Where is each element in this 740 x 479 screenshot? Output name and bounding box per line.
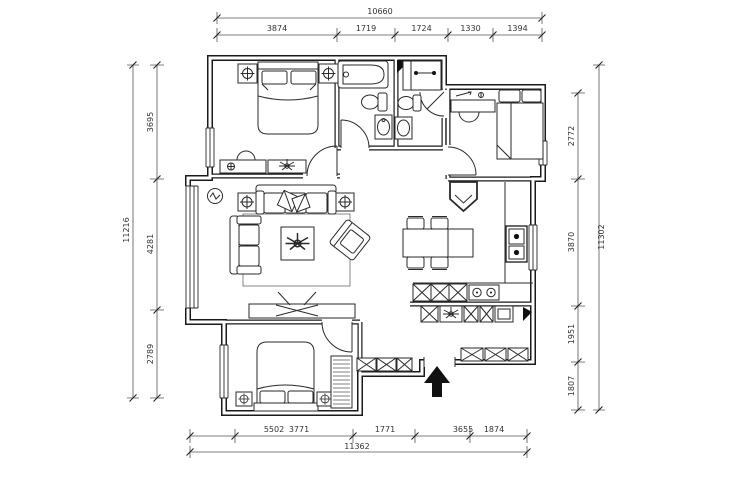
bedroom2-door-opening (443, 145, 453, 175)
desk-icon (451, 100, 495, 112)
shoe-cabinet-icon (461, 348, 483, 361)
sink-icon (375, 115, 392, 139)
double-bed-icon (254, 342, 318, 411)
shoe-cabinet-icon (397, 358, 412, 371)
bathroom-2 (395, 60, 441, 139)
living-room (208, 185, 372, 318)
pen-icon (456, 92, 471, 96)
base-cabinet-icon (413, 284, 431, 301)
corridor-entry (357, 306, 532, 397)
sink-icon (395, 117, 412, 139)
dim-label: 1807 (567, 376, 576, 396)
base-cabinet-icon (431, 284, 449, 301)
mirror-icon (228, 163, 235, 170)
dim-label: 2772 (567, 126, 576, 146)
hall-cabinet-icon (480, 306, 493, 322)
dimension-right: 11302 2772 3870 1951 1807 (567, 62, 606, 414)
armchair-icon (329, 219, 371, 261)
bathtub-icon (338, 61, 388, 88)
dim-label: 5502 (264, 425, 284, 434)
dining-chair-icon (431, 257, 448, 270)
bedroom-2 (451, 90, 543, 159)
chair-icon (459, 112, 479, 122)
shoe-cabinet-icon (485, 348, 506, 361)
shoe-cabinet-icon (377, 358, 396, 371)
dining-chair-icon (407, 257, 424, 270)
dim-label: 1951 (567, 324, 576, 344)
dim-label: 11302 (597, 224, 606, 249)
floor-plan-page: 10660 3874 1719 1724 1330 1394 5502 3771… (0, 0, 740, 479)
dresser-icon (220, 160, 266, 173)
dim-label: 3695 (146, 112, 155, 132)
kitchen-sink-icon (506, 226, 527, 262)
desk-lamp-icon (479, 92, 484, 98)
plant-cabinet-icon (440, 306, 462, 322)
dim-label: 11216 (122, 217, 131, 242)
toilet-icon (398, 95, 421, 111)
dim-label: 11362 (344, 442, 369, 451)
dim-label: 4281 (146, 234, 155, 254)
dim-label: 1771 (375, 425, 395, 434)
entry-door-opening (424, 357, 455, 367)
fridge-icon (495, 306, 513, 322)
clock-icon (208, 189, 223, 204)
dim-label: 3874 (267, 24, 287, 33)
bathroom-1 (338, 61, 392, 139)
base-cabinet-icon (449, 284, 467, 301)
shoe-cabinet-icon (508, 348, 528, 361)
wardrobe-icon (331, 356, 352, 408)
shoe-cabinet-icon (357, 358, 376, 371)
stove-icon (469, 285, 499, 300)
dimension-top: 10660 3874 1719 1724 1330 1394 (214, 7, 546, 42)
toilet-icon (362, 93, 388, 111)
dim-label: 3655 (453, 425, 473, 434)
master-door-opening (303, 171, 337, 181)
dining-chair-icon (431, 217, 448, 230)
hall-cabinet-icon (421, 306, 438, 322)
bath2-door-opening (439, 90, 449, 118)
bedroom-3 (236, 342, 352, 411)
dim-label: 1724 (411, 24, 431, 33)
coffee-table-icon (281, 227, 314, 260)
dimension-bottom: 5502 3771 1771 3655 1874 11362 (187, 425, 531, 458)
corner-cabinet-icon (450, 182, 477, 211)
dining-area (403, 182, 477, 270)
bath1-door-opening (341, 143, 369, 153)
double-bed-icon (258, 62, 318, 134)
single-bed-icon (497, 90, 543, 159)
master-bedroom (220, 62, 338, 173)
dim-label: 10660 (367, 7, 392, 16)
dining-table-icon (403, 229, 473, 257)
washing-machine-icon (403, 61, 441, 90)
dim-label: 2789 (146, 344, 155, 364)
floor-plan-canvas: 10660 3874 1719 1724 1330 1394 5502 3771… (0, 0, 740, 479)
dim-label: 1330 (460, 24, 480, 33)
entry-arrow-icon (424, 366, 450, 397)
dining-chair-icon (407, 217, 424, 230)
hall-cabinet-icon (464, 306, 478, 322)
sofa-3seat-icon (256, 185, 336, 214)
dim-label: 1874 (484, 425, 504, 434)
dim-label: 3771 (289, 425, 309, 434)
stool-icon (237, 151, 255, 160)
dim-label: 3870 (567, 232, 576, 252)
dim-label: 1719 (356, 24, 376, 33)
dim-label: 1394 (507, 24, 527, 33)
loveseat-icon (230, 216, 261, 274)
tv-cabinet-icon (249, 292, 355, 318)
dimension-left: 11216 3695 4281 2789 (122, 62, 164, 402)
